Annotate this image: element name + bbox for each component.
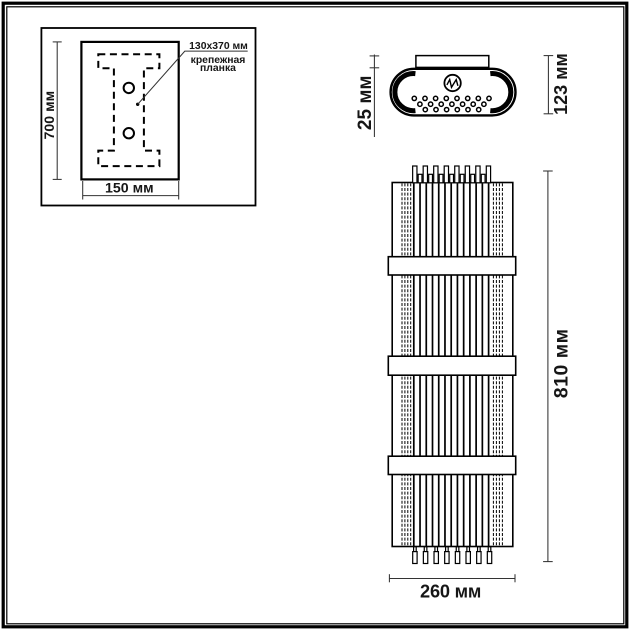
svg-text:150 мм: 150 мм: [105, 180, 154, 196]
svg-text:260 мм: 260 мм: [420, 582, 481, 602]
svg-text:планка: планка: [200, 63, 236, 74]
svg-text:810 мм: 810 мм: [550, 328, 572, 398]
svg-text:123 мм: 123 мм: [551, 53, 571, 115]
svg-text:25 мм: 25 мм: [355, 76, 376, 131]
svg-text:130x370 мм: 130x370 мм: [189, 41, 248, 52]
svg-text:700 мм: 700 мм: [42, 91, 58, 140]
